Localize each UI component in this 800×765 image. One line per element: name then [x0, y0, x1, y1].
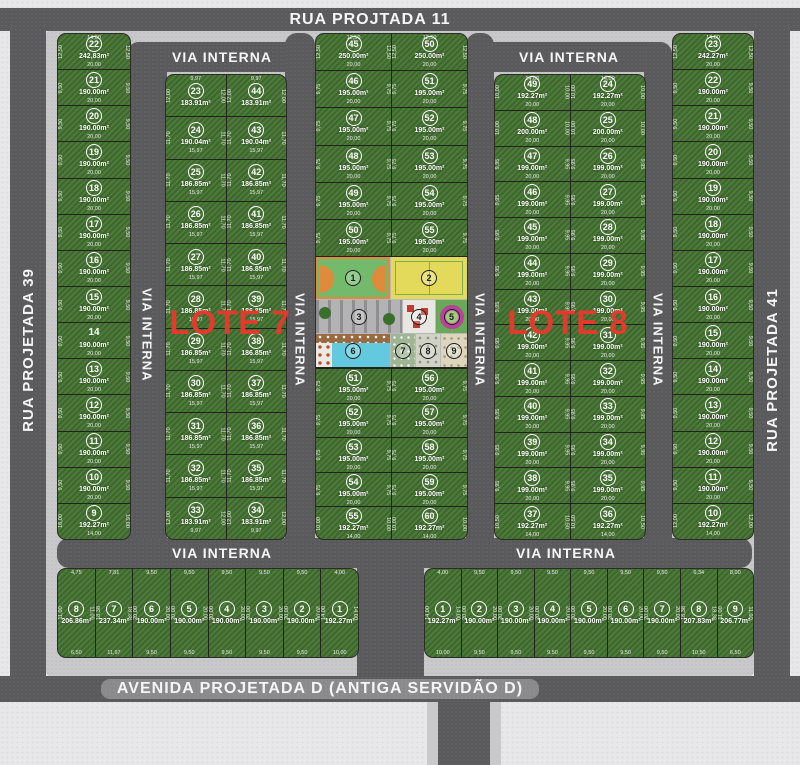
lot-20[interactable]: 9,509,5020190.00m²20,00: [673, 141, 753, 177]
lot-53[interactable]: 9,759,7553195.00m²20,00: [392, 145, 467, 182]
lot-area: 190.00m²: [287, 618, 317, 626]
lot-48[interactable]: 9,759,7548195.00m²20,00: [316, 145, 391, 182]
sports-court-zone[interactable]: 1: [316, 257, 390, 299]
lot-bottom-dim: 9,50: [221, 650, 232, 656]
lot-width-dim: 15,97: [249, 275, 263, 281]
lot-number: 1: [435, 601, 451, 617]
lot-14[interactable]: 9,509,5014190.00m²20,00: [58, 322, 130, 358]
lot-area: 186.85m²: [181, 435, 211, 443]
lot-35[interactable]: 11,7011,7035186.85m²15,97: [227, 454, 287, 496]
lot-area: 192.27m²: [428, 618, 458, 626]
lot-area: 199.00m²: [593, 380, 623, 388]
lot-side-dim: 9,50: [747, 371, 753, 382]
lot-bottom-dim: 11,97: [107, 650, 120, 656]
lot-side-dim: 12,50: [673, 45, 679, 59]
lot-side-dim: 10,00: [639, 121, 645, 135]
lot-49[interactable]: 14,0010,0010,0049192.27m²20,00: [495, 75, 570, 110]
lot-side-dim: 10,00: [639, 85, 645, 99]
lot-side-dim: 9,95: [571, 159, 577, 170]
lot-width-dim: 14,00: [706, 531, 720, 537]
lot-area: 199.00m²: [593, 236, 623, 244]
lot-side-dim: 11,70: [220, 131, 226, 144]
lot-side-dim: 9,95: [495, 480, 501, 491]
lot-side-dim: 10,50: [571, 515, 577, 529]
lot-side-dim: 9,50: [673, 82, 679, 93]
lot-area: 190.00m²: [79, 486, 109, 494]
lot-52[interactable]: 9,759,7552195.00m²20,00: [316, 403, 391, 438]
lot-10[interactable]: 12,0012,0010192.27m²14,00: [673, 503, 753, 539]
lot-width-dim: 20,00: [87, 170, 101, 176]
parking-area-zone[interactable]: 3: [316, 300, 402, 333]
lot-number: 15: [86, 289, 102, 305]
lot-number: 2: [294, 601, 310, 617]
lot-54[interactable]: 9,759,7554195.00m²20,00: [316, 472, 391, 507]
lot-16[interactable]: 9,509,5016190.00m²20,00: [673, 286, 753, 322]
lot-width-dim: 20,00: [347, 396, 361, 402]
lot-side-dim: 9,75: [461, 158, 467, 169]
lot-area: 190.00m²: [537, 618, 567, 626]
lot-area: 195.00m²: [415, 202, 445, 210]
lot-area: 190.00m²: [698, 125, 728, 133]
lot-width-dim: 20,00: [601, 210, 615, 216]
lot-area: 190.00m²: [79, 233, 109, 241]
lot-width-dim: 20,00: [525, 389, 539, 395]
lot-55[interactable]: 10,0010,0055192.27m²14,00: [316, 506, 391, 540]
lot-width-dim: 15,97: [249, 444, 263, 450]
lot-16[interactable]: 9,509,5016190.00m²20,00: [58, 250, 130, 286]
lot-49[interactable]: 9,759,7549195.00m²20,00: [316, 182, 391, 219]
lot-area: 199.00m²: [593, 451, 623, 459]
lot-9[interactable]: 16,0016,009192.27m²14,00: [58, 503, 130, 539]
lot-51[interactable]: 9,759,7551195.00m²20,00: [392, 70, 467, 107]
lot-width-dim: 20,00: [347, 465, 361, 471]
lot-side-dim: 9,75: [392, 158, 398, 169]
lot-15[interactable]: 9,509,5015190.00m²20,00: [58, 286, 130, 322]
lot-width-dim: 14,00: [347, 534, 361, 540]
lot-2[interactable]: 9,5020,0020,002190.00m²9,50: [461, 569, 498, 657]
lot-side-dim: 9,50: [58, 118, 64, 129]
lot-side-dim: 11,70: [227, 427, 233, 440]
lot-50[interactable]: 12,5012,5012,5050250.00m²20,00: [392, 34, 467, 70]
lot-41[interactable]: 11,7011,7041186.85m²15,97: [227, 201, 287, 243]
lot-number: 60: [422, 508, 438, 524]
lot-area: 186.85m²: [241, 350, 271, 358]
leisure-area: 1 2 3 4 5 6 7 8 9: [316, 256, 467, 368]
lot-area: 190.00m²: [79, 450, 109, 458]
lot-side-dim: 9,75: [392, 450, 398, 461]
lot-51[interactable]: 9,759,7551195.00m²20,00: [316, 369, 391, 403]
lot-number: 57: [422, 404, 438, 420]
lot-number: 4: [219, 601, 235, 617]
lot-5[interactable]: 9,5020,0020,005190.00m²9,50: [570, 569, 607, 657]
playground-zone[interactable]: 4: [403, 300, 435, 333]
lot-20[interactable]: 9,509,5020190.00m²20,00: [58, 105, 130, 141]
lot-number: 16: [86, 252, 102, 268]
lot-side-dim: 9,95: [495, 373, 501, 384]
lot-area: 190.00m²: [174, 618, 204, 626]
lot-side-dim: 9,50: [673, 263, 679, 274]
lot-area: 190.00m²: [698, 450, 728, 458]
lot-side-dim: 14,00: [321, 606, 327, 620]
lot-number: 28: [600, 219, 616, 235]
amenity-number: 2: [421, 270, 437, 286]
lot-33[interactable]: 9,959,9533199.00m²20,00: [571, 396, 646, 432]
lot-area: 190.00m²: [698, 161, 728, 169]
lot-width-dim: 20,00: [706, 170, 720, 176]
block-right-column: 14,0012,5012,5023242.27m²20,009,509,5022…: [672, 33, 754, 540]
via-interna-label-bottom-left: VIA INTERNA: [127, 538, 317, 568]
lot-11[interactable]: 9,509,5011190.00m²20,00: [673, 467, 753, 503]
lot-17[interactable]: 9,509,5017190.00m²20,00: [673, 250, 753, 286]
lot-side-dim: 9,95: [564, 445, 570, 456]
lot-39[interactable]: 9,959,9539199.00m²20,00: [495, 432, 570, 468]
lot-side-dim: 9,75: [316, 158, 322, 169]
lot-bottom-dim: 9,50: [474, 650, 485, 656]
lot-28[interactable]: 9,959,9528199.00m²20,00: [571, 217, 646, 253]
lot-18[interactable]: 9,509,5018190.00m²20,00: [673, 214, 753, 250]
lot-side-dim: 11,70: [227, 469, 233, 482]
lot-side-dim: 9,95: [639, 480, 645, 491]
lot-21[interactable]: 9,509,5021190.00m²20,00: [58, 69, 130, 105]
lot-7[interactable]: 9,5020,0020,007190.00m²9,50: [643, 569, 680, 657]
lot-side-dim: 9,75: [316, 233, 322, 244]
lot-top-dim: 9,50: [620, 570, 631, 576]
lot-width-dim: 15,97: [189, 275, 203, 281]
lot-side-dim: 20,00: [133, 606, 139, 620]
lot-56[interactable]: 9,759,7556195.00m²20,00: [392, 369, 467, 403]
lot-50[interactable]: 9,759,7550195.00m²20,00: [316, 219, 391, 256]
lot-36[interactable]: 10,5010,5036192.27m²14,00: [571, 503, 646, 539]
lot-area: 199.00m²: [593, 201, 623, 209]
lot-width-dim: 15,97: [249, 148, 263, 154]
lot-36[interactable]: 11,7011,7036186.85m²15,97: [227, 412, 287, 454]
lot-bottom-dim: 9,50: [511, 650, 522, 656]
lot-area: 186.85m²: [181, 350, 211, 358]
lot-7[interactable]: 7,8118,3818,387237.34m²11,97: [95, 569, 133, 657]
lot-area: 192.27m²: [79, 522, 109, 530]
lot-13[interactable]: 9,509,5013190.00m²20,00: [58, 358, 130, 394]
lot-52[interactable]: 9,759,7552195.00m²20,00: [392, 107, 467, 144]
lot-width-dim: 20,00: [87, 315, 101, 321]
lot-32[interactable]: 11,7011,7032186.85m²15,97: [166, 454, 226, 496]
lot-57[interactable]: 9,759,7557195.00m²20,00: [392, 403, 467, 438]
lot-number: 17: [705, 252, 721, 268]
lot-bottom-dim: 9,50: [584, 650, 595, 656]
lot-width-dim: 20,00: [87, 423, 101, 429]
lot-1[interactable]: 4,0014,0014,001192.27m²10,00: [425, 569, 461, 657]
street-label-left: RUA PROJETADA 39: [10, 180, 46, 520]
lot-number: 32: [188, 460, 204, 476]
lot-17[interactable]: 9,509,5017190.00m²20,00: [58, 214, 130, 250]
lot-6[interactable]: 9,5020,0020,006190.00m²9,50: [132, 569, 170, 657]
lot-top-dim: 9,50: [221, 570, 232, 576]
lot-side-dim: 10,00: [392, 517, 398, 531]
lot-12[interactable]: 9,509,5012190.00m²20,00: [58, 394, 130, 430]
lot-area: 199.00m²: [517, 380, 547, 388]
lot-23[interactable]: 14,0012,5012,5023242.27m²20,00: [673, 34, 753, 69]
lot-area: 190.00m²: [698, 378, 728, 386]
lot-side-dim: 9,50: [124, 444, 130, 455]
lot-width-dim: 20,00: [423, 62, 437, 68]
lot-37[interactable]: 11,7011,7037186.85m²15,97: [227, 370, 287, 412]
lot-32[interactable]: 9,959,9532199.00m²20,00: [571, 360, 646, 396]
lot-side-dim: 9,50: [673, 480, 679, 491]
lot-width-dim: 20,00: [601, 496, 615, 502]
lot-side-dim: 11,70: [220, 343, 226, 356]
amenity-number: 4: [411, 309, 427, 325]
lot-40[interactable]: 11,7011,7040186.85m²15,97: [227, 243, 287, 285]
lot-side-dim: 11,70: [280, 469, 286, 482]
lot-width-dim: 20,00: [423, 396, 437, 402]
lot-46[interactable]: 9,759,7546195.00m²20,00: [316, 70, 391, 107]
lot-bottom-dim: 9,50: [297, 650, 308, 656]
lot-area: 195.00m²: [339, 202, 369, 210]
lot-14[interactable]: 9,509,5014190.00m²20,00: [673, 358, 753, 394]
lot-side-dim: 9,75: [392, 195, 398, 206]
lot-53[interactable]: 9,759,7553195.00m²20,00: [316, 437, 391, 472]
lot-48[interactable]: 10,0010,0048200.00m²20,00: [495, 110, 570, 146]
left-column-lots: 14,0012,5012,5022242,83m²20,009,509,5021…: [58, 34, 130, 539]
lot-number: 29: [600, 255, 616, 271]
lot-area: 199.00m²: [593, 272, 623, 280]
lot-width-dim: 20,00: [706, 387, 720, 393]
lot-29[interactable]: 9,959,9529199.00m²20,00: [571, 253, 646, 289]
lot-side-dim: 9,50: [58, 155, 64, 166]
lot-side-dim: 9,75: [392, 121, 398, 132]
lot-top-dim: 9,50: [259, 570, 270, 576]
lot-top-dim: 12,50: [423, 35, 437, 41]
lot-45[interactable]: 12,5012,5012,5045250.00m²20,00: [316, 34, 391, 70]
lot-26[interactable]: 9,959,9526199.00m²20,00: [571, 146, 646, 182]
lot-number: 41: [524, 363, 540, 379]
lot-side-dim: 9,95: [571, 409, 577, 420]
lot-width-dim: 20,00: [601, 389, 615, 395]
lot-number: 16: [705, 289, 721, 305]
lot-width-dim: 20,00: [601, 353, 615, 359]
lot-width-dim: 15,97: [189, 148, 203, 154]
lot-width-dim: 14,00: [601, 532, 615, 538]
lot-width-dim: 20,00: [347, 136, 361, 142]
lot-top-dim: 9,50: [297, 570, 308, 576]
lot-37[interactable]: 10,5010,5037192.27m²14,00: [495, 503, 570, 539]
lot-side-dim: 9,50: [747, 299, 753, 310]
lot-top-dim: 14,00: [87, 35, 101, 41]
lot-area: 199.00m²: [593, 487, 623, 495]
lot-22[interactable]: 9,509,5022190.00m²20,00: [673, 69, 753, 105]
lot-side-dim: 9,95: [571, 194, 577, 205]
lot-side-dim: 11,70: [220, 427, 226, 440]
lot-11[interactable]: 9,509,5011190.00m²20,00: [58, 431, 130, 467]
amenity-number: 3: [351, 309, 367, 325]
lot-34[interactable]: 9,959,9534199.00m²20,00: [571, 432, 646, 468]
lot-8[interactable]: 4,7511,0011,008206.86m²6,50: [58, 569, 95, 657]
lot-side-dim: 9,95: [571, 373, 577, 384]
lot-width-dim: 20,00: [423, 430, 437, 436]
lot-60[interactable]: 10,0010,0060192.27m²14,00: [392, 506, 467, 540]
road-center-south: [357, 538, 424, 676]
lot-24[interactable]: 11,7011,7024190.04m²15,97: [166, 116, 226, 158]
lot-side-dim: 9,50: [124, 480, 130, 491]
lot-width-dim: 20,00: [601, 245, 615, 251]
via-interna-label-vertical-3: VIA INTERNA: [466, 230, 494, 450]
lot-44[interactable]: 9,959,9544199.00m²20,00: [495, 253, 570, 289]
lot-area: 195.00m²: [339, 456, 369, 464]
lot-19[interactable]: 9,509,5019190.00m²20,00: [58, 141, 130, 177]
lot-44[interactable]: 9,9712,0012,0044183.91m²: [227, 75, 287, 116]
lot-46[interactable]: 9,959,9546199.00m²20,00: [495, 181, 570, 217]
sand-play-area-zone[interactable]: 9: [441, 334, 467, 367]
lot-side-dim: 10,00: [495, 121, 501, 135]
lot-side-dim: 9,75: [316, 195, 322, 206]
lot-area: 192.27m²: [415, 525, 445, 533]
lot-1[interactable]: 4,0014,0014,001192.27m²10,00: [320, 569, 358, 657]
lot-13[interactable]: 9,509,5013190.00m²20,00: [673, 394, 753, 430]
lot-10[interactable]: 9,509,5010190.00m²20,00: [58, 467, 130, 503]
lot-width-dim: 20,00: [525, 174, 539, 180]
flower-garden-zone[interactable]: 5: [436, 300, 467, 333]
multi-sport-court-zone[interactable]: 2: [391, 257, 467, 299]
lot-number: 8: [691, 601, 707, 617]
lot-side-dim: 9,50: [58, 227, 64, 238]
lot-number: 25: [600, 112, 616, 128]
lot-side-dim: 9,75: [385, 415, 391, 426]
lot-number: 4: [544, 601, 560, 617]
lot-width-dim: 20,00: [347, 174, 361, 180]
lot-number: 9: [727, 601, 743, 617]
lot-25[interactable]: 10,0010,0025200.00m²20,00: [571, 110, 646, 146]
lot-26[interactable]: 11,7011,7026186.85m²15,97: [166, 201, 226, 243]
lot-27[interactable]: 9,959,9527199.00m²20,00: [571, 181, 646, 217]
lot-side-dim: 9,50: [673, 191, 679, 202]
lot-number: 6: [618, 601, 634, 617]
lot-number: 18: [86, 180, 102, 196]
lot-8[interactable]: 6,3418,3818,388207.83m²10,50: [680, 569, 717, 657]
lot-6[interactable]: 9,5020,0020,006190.00m²9,50: [607, 569, 644, 657]
lot-47[interactable]: 9,759,7547195.00m²20,00: [316, 107, 391, 144]
lot-area: 242,83m²: [79, 53, 109, 61]
lot-22[interactable]: 14,0012,5012,5022242,83m²20,00: [58, 34, 130, 69]
lot-33[interactable]: 12,0012,0033183.91m²9,97: [166, 497, 226, 539]
street-label-top: RUA PROJTADA 11: [230, 8, 510, 31]
lot-top-dim: 9,97: [251, 76, 262, 82]
lot-35[interactable]: 9,959,9535199.00m²20,00: [571, 467, 646, 503]
lot-number: 21: [705, 108, 721, 124]
lot-side-dim: 20,00: [246, 606, 252, 620]
lot-27[interactable]: 11,7011,7027186.85m²15,97: [166, 243, 226, 285]
lot-side-dim: 11,70: [227, 173, 233, 186]
lot-width-dim: 20,00: [347, 99, 361, 105]
lot-4[interactable]: 9,5020,0020,004190.00m²9,50: [534, 569, 571, 657]
lot-side-dim: 9,75: [316, 121, 322, 132]
lot-width-dim: 20,00: [87, 62, 101, 68]
lot-12[interactable]: 9,509,5012190.00m²20,00: [673, 431, 753, 467]
lot-55[interactable]: 9,759,7555195.00m²20,00: [392, 219, 467, 256]
lot-54[interactable]: 9,759,7554195.00m²20,00: [392, 182, 467, 219]
lot-45[interactable]: 9,959,9545199.00m²20,00: [495, 217, 570, 253]
lot-30[interactable]: 11,7011,7030186.85m²15,97: [166, 370, 226, 412]
play-equipment-area-zone[interactable]: 8: [416, 334, 440, 367]
lot-18[interactable]: 9,509,5018190.00m²20,00: [58, 178, 130, 214]
lot-9[interactable]: 8,0011,0011,009206.77m²6,50: [717, 569, 754, 657]
lot-side-dim: 11,70: [220, 216, 226, 229]
lot-top-dim: 14,00: [601, 76, 615, 82]
lot-area: 195.00m²: [415, 165, 445, 173]
lot-number: 9: [86, 505, 102, 521]
lot-number: 46: [346, 73, 362, 89]
lot-area: 186.85m²: [181, 223, 211, 231]
lot-bottom-dim: 9,50: [146, 650, 157, 656]
lot-24[interactable]: 14,0010,0010,0024192.27m²20,00: [571, 75, 646, 110]
lot-41[interactable]: 9,959,9541199.00m²20,00: [495, 360, 570, 396]
lot-21[interactable]: 9,509,5021190.00m²20,00: [673, 105, 753, 141]
lot-width-dim: 20,00: [87, 351, 101, 357]
lot-width-dim: 20,00: [525, 281, 539, 287]
lot-23[interactable]: 9,9712,0012,0023183.91m²: [166, 75, 226, 116]
lot-side-dim: 20,00: [209, 606, 215, 620]
lot-31[interactable]: 11,7011,7031186.85m²15,97: [166, 412, 226, 454]
lot-40[interactable]: 9,959,9540199.00m²20,00: [495, 396, 570, 432]
lot-2[interactable]: 9,5020,0020,002190.00m²9,50: [283, 569, 321, 657]
lot-width-dim: 20,00: [347, 211, 361, 217]
lot-19[interactable]: 9,509,5019190.00m²20,00: [673, 178, 753, 214]
lot-number: 47: [524, 148, 540, 164]
lot-bottom-dim: 6,50: [730, 650, 741, 656]
lot-number: 12: [705, 433, 721, 449]
lot-number: 10: [86, 469, 102, 485]
lot-width-dim: 15,97: [189, 232, 203, 238]
lot-34[interactable]: 12,0012,0034183.91m²9,97: [227, 497, 287, 539]
lot-side-dim: 9,50: [747, 408, 753, 419]
lot-side-dim: 10,00: [461, 517, 467, 531]
lot-42[interactable]: 11,7011,7042186.85m²15,97: [227, 159, 287, 201]
lot-side-dim: 9,75: [385, 121, 391, 132]
lot-number: 46: [524, 184, 540, 200]
street-label-avenue: AVENIDA PROJETADA D (ANTIGA SERVIDÃO D): [40, 676, 600, 702]
lot-side-dim: 11,70: [227, 216, 233, 229]
lot-side-dim: 11,70: [166, 131, 172, 144]
swimming-pool-zone[interactable]: 6: [316, 334, 390, 367]
lot-side-dim: 9,75: [385, 233, 391, 244]
lot-3[interactable]: 9,5020,0020,003190.00m²9,50: [497, 569, 534, 657]
lot-43[interactable]: 11,7011,7043190.04m²15,97: [227, 116, 287, 158]
lot-15[interactable]: 9,509,5015190.00m²20,00: [673, 322, 753, 358]
lot-area: 195.00m²: [339, 387, 369, 395]
lot-top-dim: 9,50: [511, 570, 522, 576]
lot-47[interactable]: 9,959,9547199.00m²20,00: [495, 146, 570, 182]
lot-side-dim: 12,00: [280, 89, 286, 103]
gym-area-zone[interactable]: 7: [391, 334, 415, 367]
lot-width-dim: 20,00: [706, 98, 720, 104]
lot-number: 38: [524, 470, 540, 486]
lot-area: 190.00m²: [698, 89, 728, 97]
lot-5[interactable]: 9,5020,0020,005190.00m²9,50: [170, 569, 208, 657]
lot-59[interactable]: 9,759,7559195.00m²20,00: [392, 472, 467, 507]
lot-3[interactable]: 9,5020,0020,003190.00m²9,50: [245, 569, 283, 657]
lot-area: 199.00m²: [517, 165, 547, 173]
lot-4[interactable]: 9,5020,0020,004190.00m²9,50: [208, 569, 246, 657]
lot-top-dim: 6,34: [693, 570, 704, 576]
lote7-label: LOTE 7: [162, 302, 298, 344]
lot-side-dim: 9,50: [747, 480, 753, 491]
lot-38[interactable]: 9,959,9538199.00m²20,00: [495, 467, 570, 503]
lot-side-dim: 9,95: [564, 230, 570, 241]
lot-25[interactable]: 11,7011,7025186.85m²15,97: [166, 159, 226, 201]
lot-side-dim: 9,50: [58, 335, 64, 346]
amenity-number: 8: [420, 343, 436, 359]
lot-top-dim: 12,50: [347, 35, 361, 41]
lot-area: 186.85m²: [241, 477, 271, 485]
lot-58[interactable]: 9,759,7558195.00m²20,00: [392, 437, 467, 472]
